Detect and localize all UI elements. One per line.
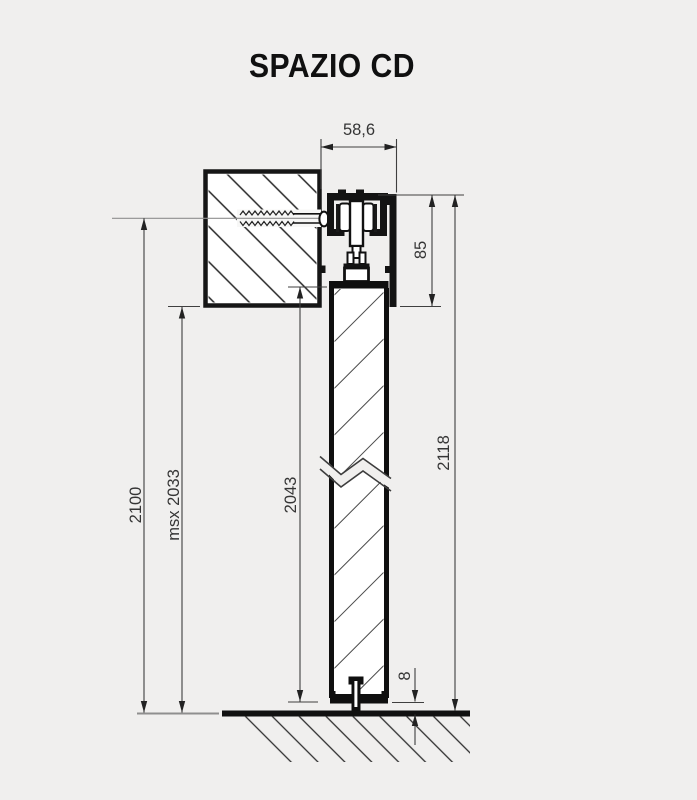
track-mount-rib-right [356, 190, 364, 194]
guide-pin-slot [354, 681, 357, 707]
roller-carriage [336, 201, 377, 282]
adjustment-nut-right [360, 253, 366, 265]
door-panel-hatch [335, 289, 384, 695]
door-clamp [345, 268, 369, 282]
dim-label-total-height: 2118 [435, 435, 453, 470]
floor-line [222, 711, 470, 717]
dim-track-width [321, 139, 397, 193]
wall-section [206, 172, 320, 306]
bracket-screw-right [385, 266, 391, 273]
dim-label-track-width: 58,6 [343, 121, 375, 139]
technical-drawing-page: SPAZIO CD [0, 0, 697, 800]
carriage-body [350, 201, 363, 246]
dim-label-msx-height: msx 2033 [165, 469, 183, 541]
roller-wheel-right [363, 204, 374, 232]
adjustment-nut-left [348, 253, 354, 265]
door-edge-left [329, 288, 334, 698]
door-top-rail [329, 281, 389, 289]
door-panel [329, 281, 389, 698]
wall-section-hatch [209, 175, 317, 303]
dim-label-carriage-height: 85 [412, 241, 430, 259]
dim-label-passage-height: 2100 [127, 487, 145, 524]
roller-wheel-left [340, 204, 351, 232]
dim-label-door-height: 2043 [282, 477, 300, 514]
track-top [327, 193, 388, 201]
floor [137, 705, 480, 770]
dim-label-floor-gap: 8 [396, 671, 414, 680]
bracket-screw-left [320, 266, 326, 274]
track-corner [387, 194, 397, 205]
track-mount-rib-left [338, 190, 346, 194]
dim-passage-height [141, 218, 147, 712]
technical-drawing: SPAZIO CD [0, 0, 697, 800]
door-edge-right [384, 288, 389, 698]
wall-bracket-plate [390, 194, 397, 307]
page-title: SPAZIO CD [249, 47, 415, 84]
